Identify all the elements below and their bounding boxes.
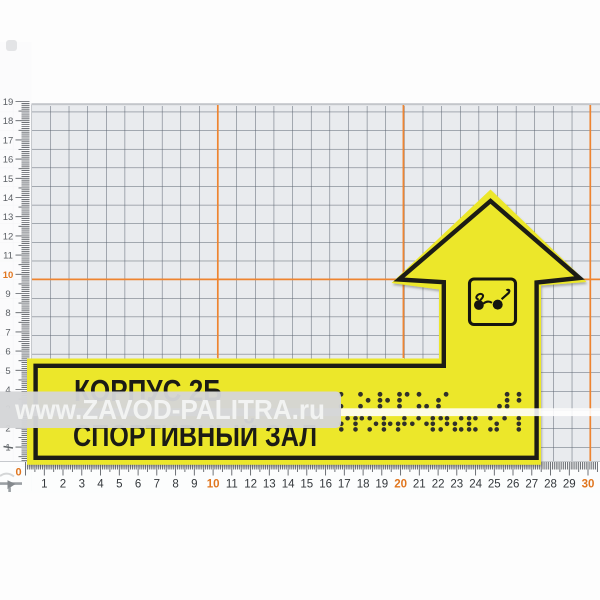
svg-text:9: 9 — [5, 289, 10, 300]
svg-text:5: 5 — [116, 479, 122, 491]
svg-text:4: 4 — [97, 479, 104, 491]
svg-text:11: 11 — [3, 251, 13, 262]
svg-text:30: 30 — [582, 479, 595, 491]
svg-text:13: 13 — [263, 479, 276, 491]
svg-text:17: 17 — [3, 135, 14, 146]
svg-text:9: 9 — [191, 479, 197, 491]
svg-text:29: 29 — [563, 479, 576, 491]
svg-text:10: 10 — [3, 270, 14, 281]
svg-text:11: 11 — [226, 479, 238, 491]
svg-text:14: 14 — [3, 193, 14, 204]
svg-text:6: 6 — [5, 347, 10, 358]
svg-text:19: 19 — [3, 97, 14, 108]
svg-text:3: 3 — [79, 479, 85, 491]
svg-text:20: 20 — [394, 479, 407, 491]
svg-text:24: 24 — [469, 479, 482, 491]
svg-text:10: 10 — [207, 479, 220, 491]
svg-text:19: 19 — [375, 479, 388, 491]
svg-text:12: 12 — [3, 231, 14, 242]
svg-text:14: 14 — [282, 479, 295, 491]
svg-text:28: 28 — [544, 479, 557, 491]
svg-text:18: 18 — [357, 479, 370, 491]
svg-text:27: 27 — [525, 479, 538, 491]
svg-text:12: 12 — [244, 479, 257, 491]
svg-text:18: 18 — [3, 116, 14, 127]
svg-text:15: 15 — [300, 479, 313, 491]
svg-text:21: 21 — [413, 479, 426, 491]
svg-text:7: 7 — [5, 327, 10, 338]
svg-text:23: 23 — [450, 479, 463, 491]
svg-text:22: 22 — [432, 479, 445, 491]
svg-text:25: 25 — [488, 479, 501, 491]
svg-text:15: 15 — [3, 174, 14, 185]
svg-text:8: 8 — [172, 479, 178, 491]
svg-text:5: 5 — [5, 366, 10, 377]
svg-text:26: 26 — [507, 479, 520, 491]
svg-text:1: 1 — [41, 479, 47, 491]
svg-text:16: 16 — [319, 479, 332, 491]
svg-text:6: 6 — [135, 479, 141, 491]
svg-text:16: 16 — [3, 155, 14, 166]
svg-text:0: 0 — [15, 467, 21, 479]
svg-text:7: 7 — [154, 479, 160, 491]
svg-text:17: 17 — [338, 479, 351, 491]
svg-text:8: 8 — [5, 308, 10, 319]
svg-text:13: 13 — [3, 212, 14, 223]
svg-text:www.ZAVOD-PALITRA.ru: www.ZAVOD-PALITRA.ru — [14, 394, 325, 425]
svg-text:2: 2 — [60, 479, 66, 491]
